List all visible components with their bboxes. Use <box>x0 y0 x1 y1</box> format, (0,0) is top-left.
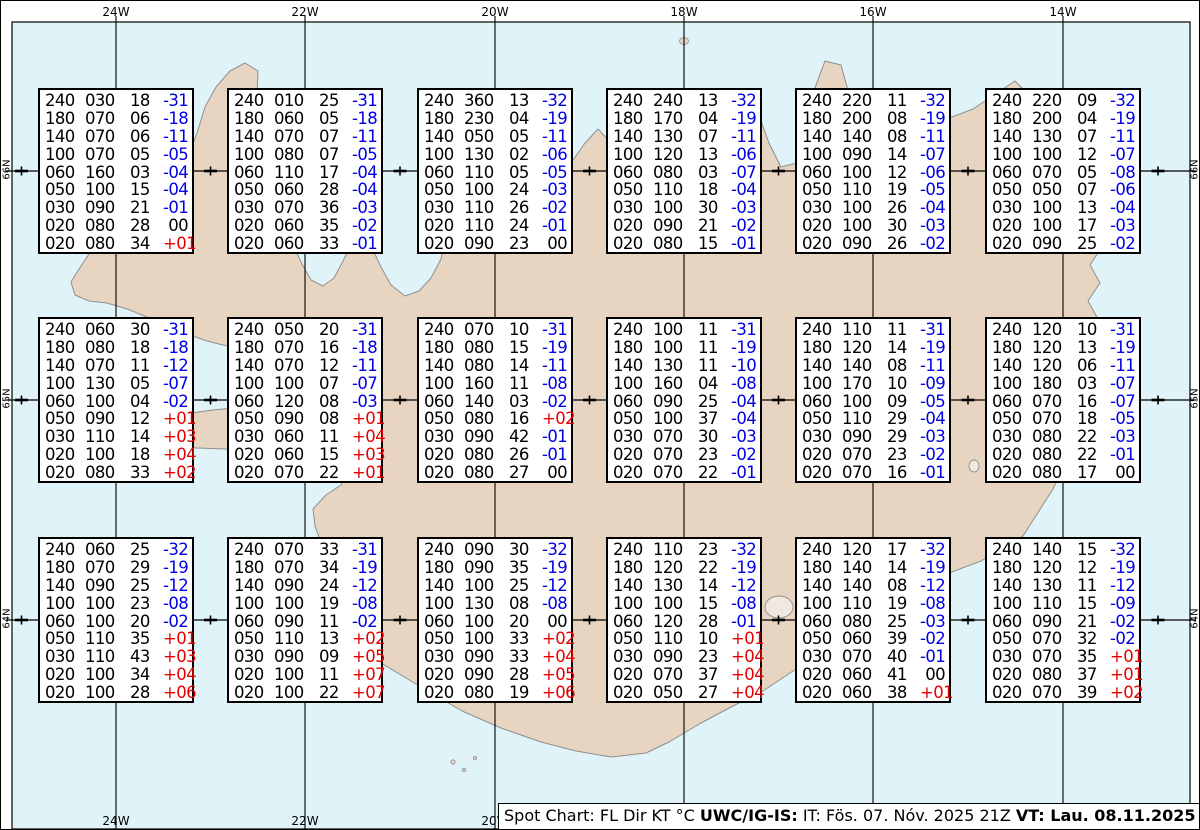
latitude-label-right: 64N <box>1190 604 1200 634</box>
spot-row: 14013011-12 <box>992 576 1139 594</box>
dir-value: 090 <box>85 198 130 217</box>
spot-row: 03007036-03 <box>234 198 381 216</box>
dir-value: 060 <box>842 683 887 702</box>
dir-value: 100 <box>653 594 698 613</box>
dir-value: 070 <box>274 127 319 146</box>
spot-row: 03007030-03 <box>613 427 760 445</box>
temp-value: -19 <box>1110 558 1139 577</box>
kt-value: 28 <box>698 612 731 631</box>
spot-row: 18007034-19 <box>234 558 381 576</box>
fl-value: 030 <box>992 198 1032 217</box>
spot-row: 10013005-07 <box>45 374 192 392</box>
spot-row: 02010028+06 <box>45 683 192 701</box>
longitude-label-top: 16W <box>851 5 895 19</box>
kt-value: 07 <box>319 374 352 393</box>
temp-value: -31 <box>542 320 571 339</box>
fl-value: 240 <box>802 540 842 559</box>
dir-value: 070 <box>842 647 887 666</box>
temp-value: +05 <box>542 665 579 684</box>
dir-value: 120 <box>653 612 698 631</box>
fl-value: 240 <box>992 320 1032 339</box>
longitude-label-top: 22W <box>283 5 327 19</box>
fl-value: 030 <box>802 198 842 217</box>
fl-value: 020 <box>45 683 85 702</box>
temp-value: -18 <box>352 338 381 357</box>
longitude-label-bottom: 24W <box>94 814 138 828</box>
kt-value: 30 <box>887 216 920 235</box>
spot-row: 03009023+04 <box>613 647 760 665</box>
dir-value: 050 <box>274 320 319 339</box>
fl-value: 050 <box>802 180 842 199</box>
kt-value: 18 <box>698 180 731 199</box>
temp-value: -03 <box>920 216 949 235</box>
fl-value: 100 <box>992 374 1032 393</box>
kt-value: 25 <box>887 612 920 631</box>
fl-value: 020 <box>802 665 842 684</box>
dir-value: 110 <box>842 409 887 428</box>
spot-box: 24006025-3218007029-1914009025-121001002… <box>38 537 194 703</box>
fl-value: 240 <box>613 540 653 559</box>
kt-value: 10 <box>509 320 542 339</box>
spot-row: 02010017-03 <box>992 216 1139 234</box>
fl-value: 030 <box>234 427 274 446</box>
dir-value: 110 <box>85 427 130 446</box>
fl-value: 240 <box>992 91 1032 110</box>
dir-value: 100 <box>1032 198 1077 217</box>
dir-value: 110 <box>842 180 887 199</box>
spot-row: 10013002-06 <box>424 145 571 163</box>
fl-value: 180 <box>613 109 653 128</box>
kt-value: 05 <box>130 145 163 164</box>
spot-chart-page: 24W22W20W18W16W14W 24W22W20W 66N65N64N 6… <box>0 0 1200 830</box>
fl-value: 140 <box>802 356 842 375</box>
dir-value: 100 <box>464 629 509 648</box>
spot-row: 0200801700 <box>992 463 1139 481</box>
kt-value: 37 <box>698 665 731 684</box>
temp-value: -32 <box>542 540 571 559</box>
temp-value: -12 <box>163 576 192 595</box>
kt-value: 03 <box>1077 374 1110 393</box>
dir-value: 140 <box>464 392 509 411</box>
spot-row: 24006030-31 <box>45 320 192 338</box>
kt-value: 17 <box>319 163 352 182</box>
temp-value: 00 <box>1110 463 1139 482</box>
temp-value: +07 <box>352 683 389 702</box>
spot-row: 03010026-04 <box>802 198 949 216</box>
spot-row: 05008016+02 <box>424 409 571 427</box>
temp-value: -08 <box>920 594 949 613</box>
dir-value: 100 <box>653 198 698 217</box>
fl-value: 240 <box>45 540 85 559</box>
spot-row: 24001025-31 <box>234 91 381 109</box>
spot-row: 06012008-03 <box>234 392 381 410</box>
spot-row: 02007023-02 <box>613 445 760 463</box>
kt-value: 20 <box>319 320 352 339</box>
temp-value: -06 <box>920 163 949 182</box>
spot-box: 24024013-3218017004-1914013007-111001201… <box>606 88 762 254</box>
kt-value: 33 <box>319 540 352 559</box>
fl-value: 030 <box>424 198 464 217</box>
dir-value: 090 <box>274 612 319 631</box>
kt-value: 24 <box>319 576 352 595</box>
temp-value: +07 <box>352 665 389 684</box>
dir-value: 120 <box>842 338 887 357</box>
kt-value: 29 <box>887 409 920 428</box>
latitude-label-left: 64N <box>2 604 13 634</box>
temp-value: -31 <box>163 320 192 339</box>
kt-value: 11 <box>887 91 920 110</box>
spot-box: 24022011-3218020008-1914014008-111000901… <box>795 88 951 254</box>
temp-value: -12 <box>542 576 571 595</box>
dir-value: 100 <box>274 374 319 393</box>
temp-value: +05 <box>352 647 389 666</box>
temp-value: -09 <box>1110 594 1139 613</box>
fl-value: 100 <box>424 145 464 164</box>
fl-value: 050 <box>992 629 1032 648</box>
spot-row: 02008037+01 <box>992 665 1139 683</box>
spot-row: 05011035+01 <box>45 629 192 647</box>
dir-value: 080 <box>464 463 509 482</box>
fl-value: 050 <box>234 629 274 648</box>
fl-value: 060 <box>992 163 1032 182</box>
kt-value: 18 <box>130 445 163 464</box>
dir-value: 080 <box>1032 427 1077 446</box>
dir-value: 120 <box>1032 338 1077 357</box>
spot-row: 06007016-07 <box>992 392 1139 410</box>
kt-value: 28 <box>319 180 352 199</box>
dir-value: 110 <box>842 594 887 613</box>
fl-value: 100 <box>802 594 842 613</box>
fl-value: 020 <box>424 463 464 482</box>
kt-value: 05 <box>509 163 542 182</box>
kt-value: 05 <box>319 109 352 128</box>
dir-value: 140 <box>842 356 887 375</box>
temp-value: -07 <box>920 145 949 164</box>
spot-row: 14012006-11 <box>992 356 1139 374</box>
fl-value: 180 <box>802 338 842 357</box>
kt-value: 12 <box>130 409 163 428</box>
kt-value: 15 <box>509 338 542 357</box>
fl-value: 020 <box>234 665 274 684</box>
dir-value: 130 <box>653 576 698 595</box>
spot-row: 03009042-01 <box>424 427 571 445</box>
kt-value: 15 <box>1077 540 1110 559</box>
temp-value: -01 <box>163 198 192 217</box>
spot-row: 06009025-04 <box>613 392 760 410</box>
temp-value: -11 <box>1110 127 1139 146</box>
kt-value: 30 <box>698 427 731 446</box>
dir-value: 070 <box>85 127 130 146</box>
kt-value: 22 <box>1077 427 1110 446</box>
spot-row: 02011024-01 <box>424 216 571 234</box>
spot-row: 10010012-07 <box>992 145 1139 163</box>
dir-value: 120 <box>1032 558 1077 577</box>
temp-value: -02 <box>920 445 949 464</box>
fl-value: 100 <box>992 145 1032 164</box>
dir-value: 100 <box>464 576 509 595</box>
spot-row: 05006039-02 <box>802 629 949 647</box>
temp-value: -19 <box>542 558 571 577</box>
kt-value: 35 <box>130 629 163 648</box>
kt-value: 34 <box>130 234 163 253</box>
kt-value: 13 <box>319 629 352 648</box>
fl-value: 060 <box>424 612 464 631</box>
spot-row: 14013007-11 <box>613 127 760 145</box>
kt-value: 34 <box>319 558 352 577</box>
kt-value: 23 <box>130 594 163 613</box>
temp-value: -12 <box>731 576 760 595</box>
kt-value: 16 <box>319 338 352 357</box>
temp-value: -03 <box>920 612 949 631</box>
temp-value: -19 <box>542 109 571 128</box>
dir-value: 130 <box>653 127 698 146</box>
temp-value: +01 <box>163 409 200 428</box>
spot-row: 06014003-02 <box>424 392 571 410</box>
temp-value: -08 <box>542 594 571 613</box>
temp-value: -04 <box>731 392 760 411</box>
kt-value: 07 <box>1077 180 1110 199</box>
spot-row: 02010011+07 <box>234 665 381 683</box>
kt-value: 04 <box>1077 109 1110 128</box>
temp-value: +02 <box>163 463 200 482</box>
temp-value: -02 <box>352 612 381 631</box>
temp-value: +04 <box>731 683 768 702</box>
dir-value: 060 <box>842 629 887 648</box>
spot-row: 02008033+02 <box>45 463 192 481</box>
fl-value: 180 <box>45 109 85 128</box>
temp-value: -02 <box>731 445 760 464</box>
dir-value: 120 <box>653 558 698 577</box>
spot-row: 02006015+03 <box>234 445 381 463</box>
dir-value: 200 <box>1032 109 1077 128</box>
spot-box: 24007033-3118007034-1914009024-121001001… <box>227 537 383 703</box>
spot-row: 18020008-19 <box>802 109 949 127</box>
fl-value: 180 <box>992 558 1032 577</box>
dir-value: 090 <box>653 392 698 411</box>
caption-valid-time: VT: Lau. 08.11.2025 20Z <box>1016 806 1200 825</box>
kt-value: 18 <box>130 338 163 357</box>
fl-value: 030 <box>234 647 274 666</box>
temp-value: +03 <box>352 445 389 464</box>
temp-value: -11 <box>163 127 192 146</box>
latitude-label-right: 65N <box>1190 384 1200 414</box>
kt-value: 15 <box>130 180 163 199</box>
fl-value: 180 <box>613 558 653 577</box>
fl-value: 020 <box>613 234 653 253</box>
temp-value: -31 <box>352 540 381 559</box>
temp-value: -05 <box>352 145 381 164</box>
dir-value: 090 <box>274 409 319 428</box>
spot-row: 06016003-04 <box>45 163 192 181</box>
dir-value: 130 <box>1032 127 1077 146</box>
spot-row: 05010024-03 <box>424 180 571 198</box>
latitude-label-left: 66N <box>2 155 13 185</box>
kt-value: 04 <box>509 109 542 128</box>
temp-value: -12 <box>163 356 192 375</box>
fl-value: 020 <box>613 683 653 702</box>
dir-value: 200 <box>842 109 887 128</box>
kt-value: 42 <box>509 427 542 446</box>
fl-value: 100 <box>234 374 274 393</box>
fl-value: 020 <box>45 665 85 684</box>
kt-value: 23 <box>698 540 731 559</box>
spot-row: 0601002000 <box>424 612 571 630</box>
spot-box: 24001025-3118006005-1814007007-111000800… <box>227 88 383 254</box>
spot-row: 02005027+04 <box>613 683 760 701</box>
dir-value: 100 <box>274 665 319 684</box>
kt-value: 27 <box>509 463 542 482</box>
fl-value: 240 <box>424 320 464 339</box>
spot-row: 02008019+06 <box>424 683 571 701</box>
dir-value: 090 <box>464 558 509 577</box>
kt-value: 34 <box>130 665 163 684</box>
dir-value: 110 <box>274 163 319 182</box>
spot-row: 24009030-32 <box>424 540 571 558</box>
dir-value: 070 <box>85 145 130 164</box>
temp-value: +02 <box>542 629 579 648</box>
dir-value: 170 <box>653 109 698 128</box>
dir-value: 080 <box>464 445 509 464</box>
dir-value: 070 <box>85 109 130 128</box>
dir-value: 130 <box>1032 576 1077 595</box>
fl-value: 140 <box>992 127 1032 146</box>
fl-value: 020 <box>234 216 274 235</box>
kt-value: 16 <box>509 409 542 428</box>
latitude-label-left: 65N <box>2 384 13 414</box>
fl-value: 140 <box>992 576 1032 595</box>
spot-row: 05007018-05 <box>992 409 1139 427</box>
fl-value: 020 <box>802 216 842 235</box>
fl-value: 060 <box>992 392 1032 411</box>
kt-value: 15 <box>319 445 352 464</box>
dir-value: 080 <box>653 234 698 253</box>
spot-row: 02008034+01 <box>45 234 192 252</box>
dir-value: 090 <box>85 576 130 595</box>
temp-value: -02 <box>542 198 571 217</box>
fl-value: 060 <box>802 392 842 411</box>
temp-value: +06 <box>163 683 200 702</box>
spot-row: 02007039+02 <box>992 683 1139 701</box>
kt-value: 05 <box>130 374 163 393</box>
dir-value: 080 <box>85 338 130 357</box>
kt-value: 22 <box>698 558 731 577</box>
dir-value: 100 <box>85 392 130 411</box>
spot-row: 06008025-03 <box>802 612 949 630</box>
kt-value: 12 <box>1077 558 1110 577</box>
fl-value: 060 <box>234 612 274 631</box>
temp-value: -04 <box>352 180 381 199</box>
dir-value: 100 <box>464 180 509 199</box>
dir-value: 080 <box>1032 665 1077 684</box>
temp-value: -32 <box>920 91 949 110</box>
kt-value: 10 <box>887 374 920 393</box>
spot-row: 06009011-02 <box>234 612 381 630</box>
dir-value: 090 <box>464 540 509 559</box>
spot-row: 06010020-02 <box>45 612 192 630</box>
temp-value: -01 <box>352 234 381 253</box>
temp-value: +04 <box>163 665 200 684</box>
temp-value: -12 <box>352 576 381 595</box>
spot-row: 18017004-19 <box>613 109 760 127</box>
spot-row: 06011017-04 <box>234 163 381 181</box>
spot-row: 03007040-01 <box>802 647 949 665</box>
dir-value: 080 <box>842 612 887 631</box>
kt-value: 11 <box>887 320 920 339</box>
dir-value: 130 <box>653 356 698 375</box>
spot-row: 02007022-01 <box>613 463 760 481</box>
temp-value: -01 <box>731 463 760 482</box>
dir-value: 070 <box>85 558 130 577</box>
fl-value: 240 <box>802 91 842 110</box>
kt-value: 06 <box>130 127 163 146</box>
spot-row: 05011029-04 <box>802 409 949 427</box>
temp-value: -07 <box>1110 392 1139 411</box>
temp-value: -19 <box>542 338 571 357</box>
kt-value: 24 <box>509 216 542 235</box>
kt-value: 07 <box>698 127 731 146</box>
fl-value: 180 <box>234 109 274 128</box>
fl-value: 140 <box>234 356 274 375</box>
fl-value: 030 <box>45 647 85 666</box>
dir-value: 080 <box>653 163 698 182</box>
dir-value: 080 <box>85 234 130 253</box>
temp-value: +04 <box>731 647 768 666</box>
kt-value: 11 <box>130 356 163 375</box>
temp-value: -04 <box>731 409 760 428</box>
fl-value: 020 <box>424 445 464 464</box>
kt-value: 09 <box>1077 91 1110 110</box>
fl-value: 020 <box>45 234 85 253</box>
kt-value: 04 <box>698 374 731 393</box>
spot-row: 10016011-08 <box>424 374 571 392</box>
spot-row: 18007006-18 <box>45 109 192 127</box>
temp-value: -01 <box>731 612 760 631</box>
dir-value: 080 <box>464 338 509 357</box>
kt-value: 25 <box>698 392 731 411</box>
dir-value: 100 <box>85 445 130 464</box>
temp-value: -02 <box>163 612 192 631</box>
temp-value: -31 <box>163 91 192 110</box>
kt-value: 28 <box>130 216 163 235</box>
kt-value: 14 <box>887 558 920 577</box>
fl-value: 060 <box>424 163 464 182</box>
temp-value: -08 <box>352 594 381 613</box>
temp-value: -11 <box>352 127 381 146</box>
fl-value: 030 <box>424 427 464 446</box>
temp-value: -01 <box>920 463 949 482</box>
spot-row: 10017010-09 <box>802 374 949 392</box>
spot-row: 02006038+01 <box>802 683 949 701</box>
temp-value: -05 <box>920 180 949 199</box>
fl-value: 050 <box>802 629 842 648</box>
fl-value: 180 <box>992 338 1032 357</box>
kt-value: 08 <box>887 127 920 146</box>
temp-value: -02 <box>920 234 949 253</box>
kt-value: 08 <box>319 392 352 411</box>
kt-value: 21 <box>130 198 163 217</box>
temp-value: -11 <box>920 127 949 146</box>
kt-value: 33 <box>509 647 542 666</box>
spot-row: 03009009+05 <box>234 647 381 665</box>
kt-value: 06 <box>130 109 163 128</box>
dir-value: 110 <box>464 216 509 235</box>
dir-value: 050 <box>464 127 509 146</box>
spot-row: 06008003-07 <box>613 163 760 181</box>
spot-row: 02007022+01 <box>234 463 381 481</box>
fl-value: 100 <box>45 145 85 164</box>
dir-value: 100 <box>653 338 698 357</box>
spot-row: 24024013-32 <box>613 91 760 109</box>
